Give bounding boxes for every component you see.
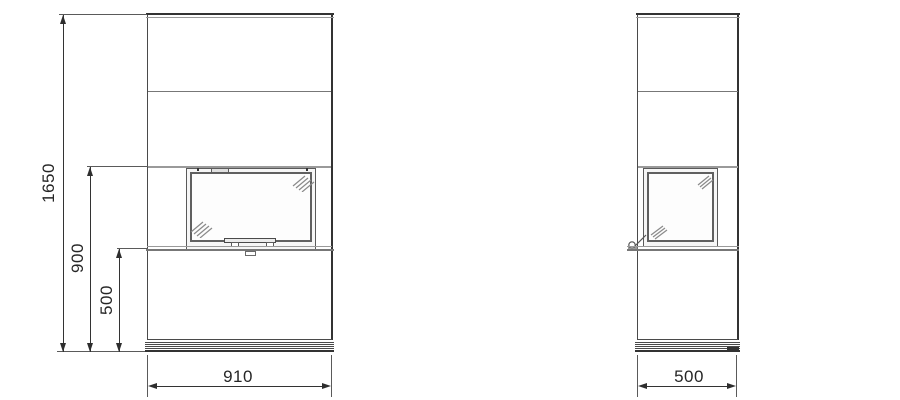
side-sill-line — [627, 246, 739, 247]
glass-reflection-icon — [190, 220, 214, 243]
front-top-cap-line — [146, 13, 334, 15]
dimension-line — [90, 167, 91, 352]
extension-line-left — [637, 355, 638, 397]
extension-line-bottom — [57, 351, 145, 352]
side-front-edge-line — [637, 14, 638, 340]
base-plate-line — [145, 346, 334, 347]
arrow-left-icon — [148, 383, 157, 389]
door-latch-icon — [626, 234, 648, 255]
base-plate-line — [635, 346, 740, 347]
dimension-line — [119, 249, 120, 352]
front-right-edge-line — [331, 14, 333, 340]
base-plate-line — [145, 342, 334, 343]
glass-reflection-icon — [650, 224, 670, 245]
base-bottom-line — [635, 350, 740, 352]
side-body-bottom-line — [637, 339, 738, 340]
dim-label-lower-height: 500 — [97, 285, 117, 315]
dim-label-side-depth: 500 — [674, 367, 704, 387]
front-upper-panel-divider — [148, 91, 331, 92]
side-upper-panel-divider — [638, 91, 738, 92]
frame-tick-right — [306, 168, 308, 171]
glass-reflection-icon — [697, 174, 715, 195]
arrow-up-icon — [60, 15, 66, 24]
arrow-up-icon — [87, 167, 93, 176]
base-plate-line — [635, 342, 740, 343]
technical-drawing-canvas: 1650 900 500 910 — [0, 0, 900, 400]
front-left-edge-line — [147, 14, 148, 340]
extension-line-top — [59, 14, 147, 15]
side-sill-line-lower — [627, 249, 739, 251]
base-plate-line — [145, 348, 334, 349]
firebox-sill-line — [147, 246, 332, 247]
arrow-down-icon — [87, 343, 93, 352]
side-top-cap-line — [636, 13, 740, 15]
arrow-right-icon — [727, 383, 736, 389]
firebox-sill-line-lower — [146, 249, 334, 251]
arrow-down-icon — [116, 343, 122, 352]
frame-tick-left — [197, 168, 199, 171]
extension-line — [87, 166, 148, 167]
firebox-vent-slot — [211, 168, 229, 173]
dim-label-front-width: 910 — [223, 367, 253, 387]
side-top-cap-inner-line — [636, 17, 740, 18]
base-plate-line — [635, 348, 740, 349]
base-plate-line — [145, 344, 334, 345]
arrow-down-icon — [60, 343, 66, 352]
side-back-edge-line — [737, 14, 739, 340]
dim-label-total-height: 1650 — [39, 163, 59, 203]
extension-line-right — [736, 355, 737, 397]
sill-center-tab — [245, 251, 256, 256]
front-body-bottom-line — [147, 339, 332, 340]
arrow-left-icon — [638, 383, 647, 389]
front-top-cap-inner-line — [146, 17, 334, 18]
dimension-line — [63, 15, 64, 352]
arrow-up-icon — [116, 249, 122, 258]
extension-line-right — [331, 355, 332, 397]
base-bottom-line — [145, 350, 334, 352]
base-end-block — [727, 347, 739, 352]
base-plate-line — [635, 344, 740, 345]
dim-label-upper-height: 900 — [68, 243, 88, 273]
extension-line-left — [147, 355, 148, 397]
glass-reflection-icon — [292, 174, 316, 197]
arrow-right-icon — [322, 383, 331, 389]
